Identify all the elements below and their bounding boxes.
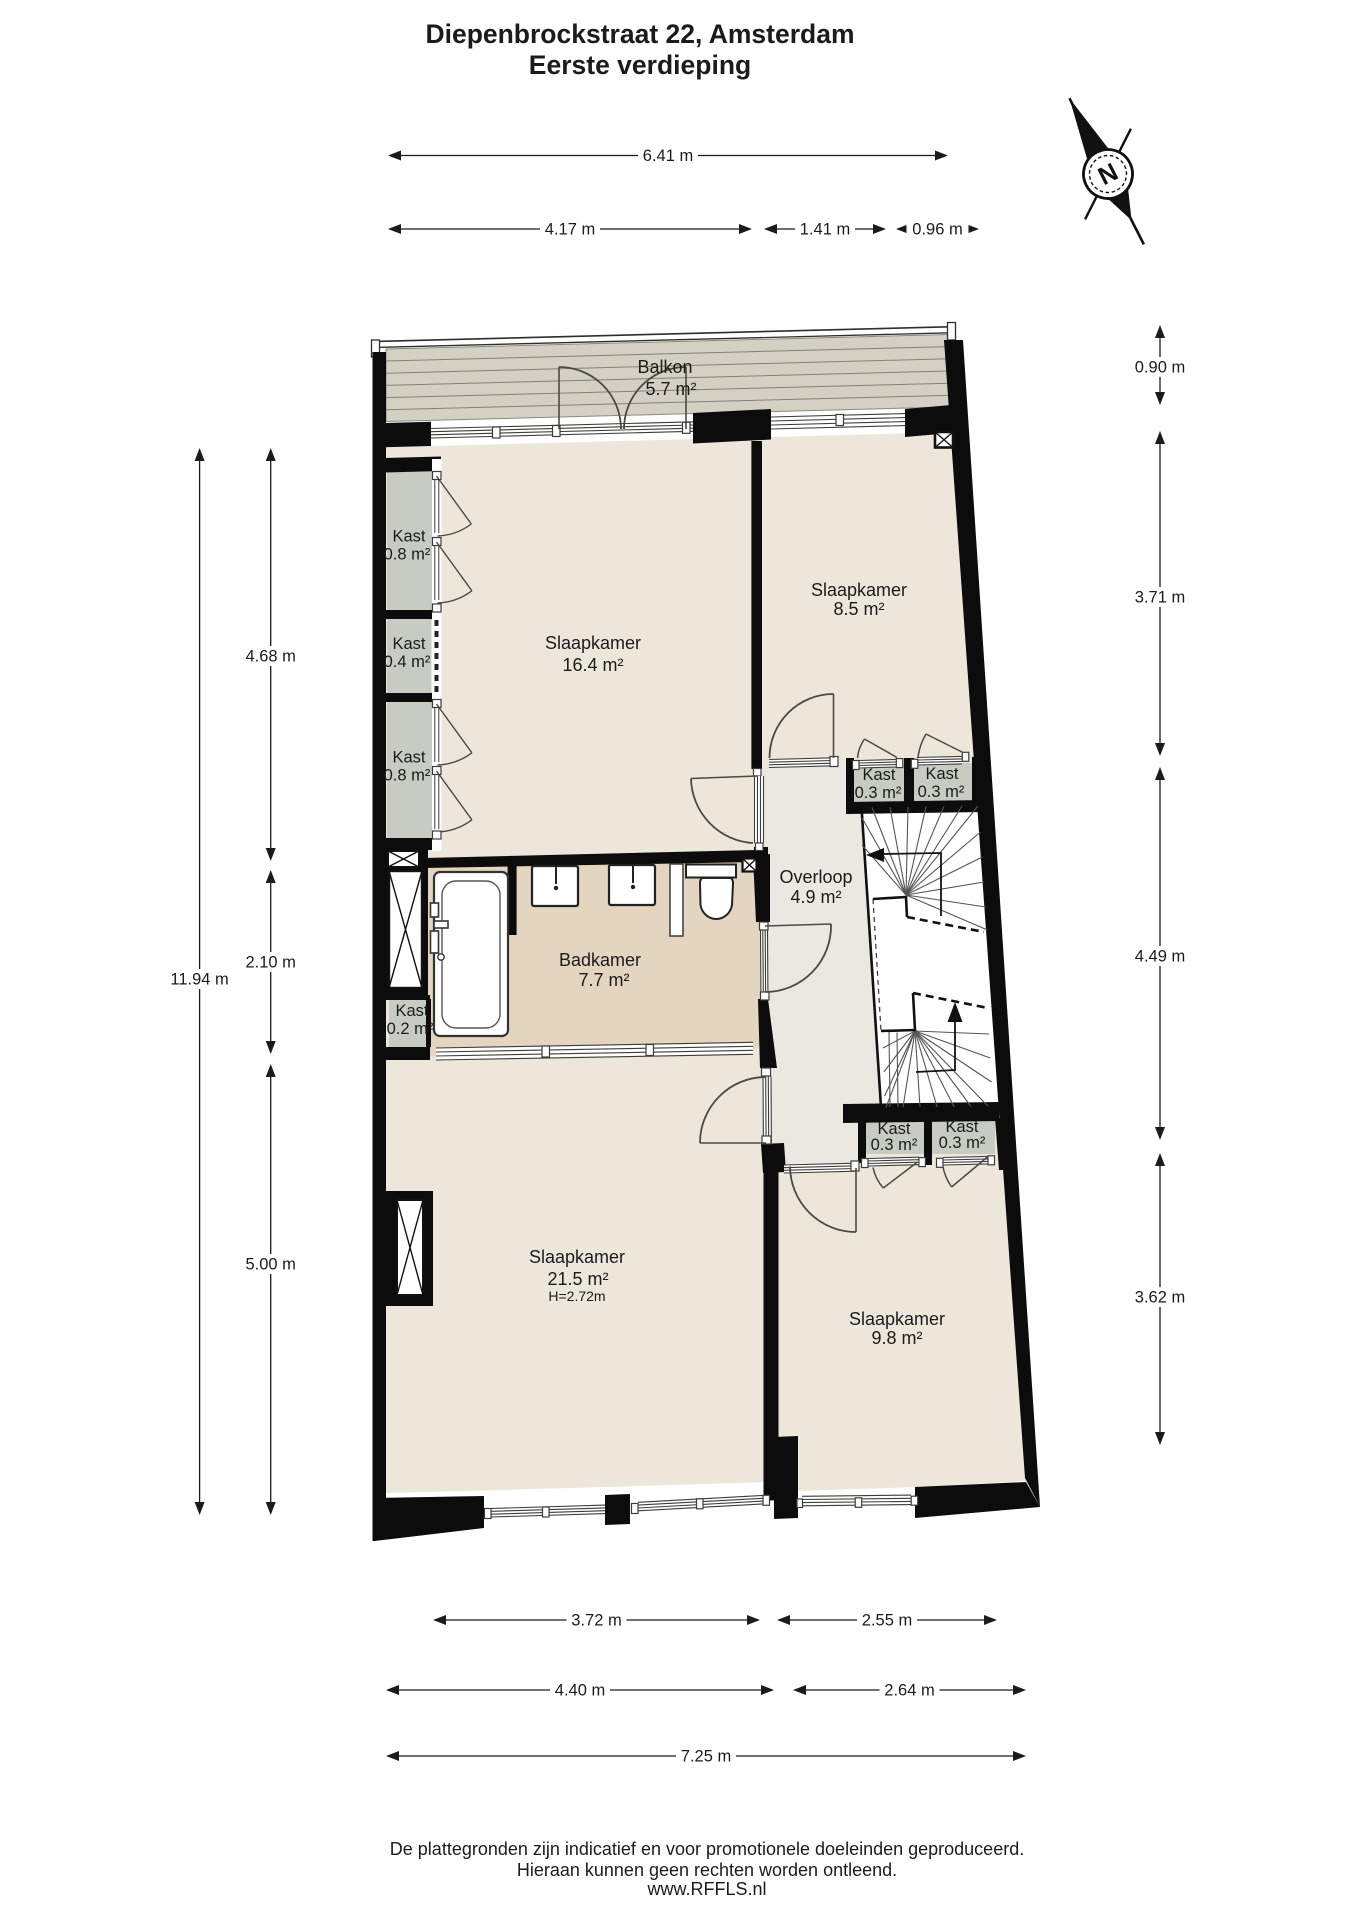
svg-text:11.94 m: 11.94 m [170,971,228,989]
svg-text:Slaapkamer: Slaapkamer [545,633,641,653]
svg-text:Kast: Kast [395,1002,428,1020]
svg-text:5.00 m: 5.00 m [245,1256,295,1274]
svg-text:2.55 m: 2.55 m [862,1612,912,1630]
svg-text:Slaapkamer: Slaapkamer [529,1247,625,1267]
svg-text:3.72 m: 3.72 m [571,1612,621,1630]
svg-text:4.9 m²: 4.9 m² [790,887,841,907]
svg-text:2.10 m: 2.10 m [245,954,295,972]
svg-text:3.71 m: 3.71 m [1135,589,1185,607]
svg-text:4.17 m: 4.17 m [545,221,595,239]
svg-text:H=2.72m: H=2.72m [548,1288,605,1304]
svg-text:De plattegronden zijn indicati: De plattegronden zijn indicatief en voor… [390,1839,1024,1859]
svg-text:21.5 m²: 21.5 m² [547,1269,608,1289]
svg-text:Eerste verdieping: Eerste verdieping [529,50,751,80]
svg-text:9.8 m²: 9.8 m² [871,1328,922,1348]
svg-text:5.7 m²: 5.7 m² [645,379,696,399]
svg-text:6.41 m: 6.41 m [643,147,693,165]
svg-text:Kast: Kast [392,749,425,767]
svg-text:Kast: Kast [925,765,958,783]
svg-text:Slaapkamer: Slaapkamer [849,1309,945,1329]
svg-text:4.68 m: 4.68 m [245,648,295,666]
svg-text:0.4 m²: 0.4 m² [384,653,431,671]
svg-text:0.8 m²: 0.8 m² [384,546,431,564]
svg-text:Badkamer: Badkamer [559,950,641,970]
svg-text:0.96 m: 0.96 m [912,221,962,239]
svg-text:Overloop: Overloop [779,867,852,887]
svg-text:0.8 m²: 0.8 m² [384,767,431,785]
svg-text:3.62 m: 3.62 m [1135,1289,1185,1307]
svg-text:0.3 m²: 0.3 m² [918,783,965,801]
svg-text:Slaapkamer: Slaapkamer [811,580,907,600]
svg-text:Balkon: Balkon [637,357,692,377]
svg-text:Kast: Kast [392,635,425,653]
svg-text:0.90 m: 0.90 m [1135,359,1185,377]
svg-text:0.3 m²: 0.3 m² [855,784,902,802]
svg-text:Diepenbrockstraat 22, Amsterda: Diepenbrockstraat 22, Amsterdam [425,19,854,49]
svg-text:0.3 m²: 0.3 m² [939,1134,986,1152]
svg-text:0.3 m²: 0.3 m² [871,1136,918,1154]
svg-text:8.5 m²: 8.5 m² [833,599,884,619]
svg-text:1.41 m: 1.41 m [800,221,850,239]
svg-text:0.2 m²: 0.2 m² [387,1020,434,1038]
svg-text:7.25 m: 7.25 m [681,1748,731,1766]
svg-text:7.7 m²: 7.7 m² [578,970,629,990]
svg-text:16.4 m²: 16.4 m² [562,655,623,675]
svg-text:2.64 m: 2.64 m [884,1682,934,1700]
svg-text:Kast: Kast [862,766,895,784]
svg-text:Kast: Kast [392,528,425,546]
svg-text:www.RFFLS.nl: www.RFFLS.nl [646,1879,766,1899]
svg-text:4.40 m: 4.40 m [555,1682,605,1700]
svg-text:Hieraan kunnen geen rechten wo: Hieraan kunnen geen rechten worden ontle… [517,1860,897,1880]
svg-text:4.49 m: 4.49 m [1135,948,1185,966]
